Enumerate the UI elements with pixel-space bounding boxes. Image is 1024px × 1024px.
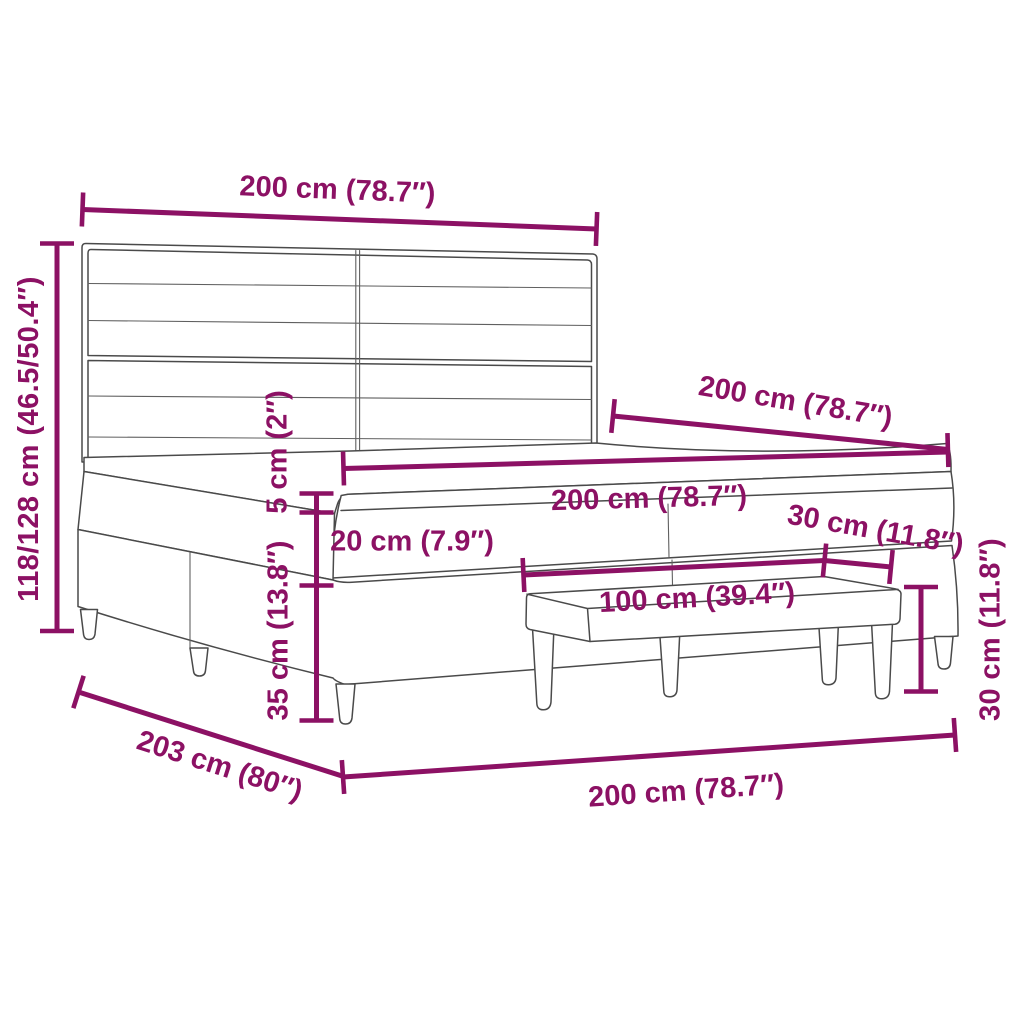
svg-text:200 cm (78.7″): 200 cm (78.7″): [551, 480, 748, 517]
svg-text:35 cm (13.8″): 35 cm (13.8″): [263, 541, 295, 721]
svg-text:20 cm (7.9″): 20 cm (7.9″): [330, 526, 494, 558]
svg-text:5 cm (2″): 5 cm (2″): [262, 390, 294, 514]
svg-text:30 cm (11.8″): 30 cm (11.8″): [975, 538, 1007, 721]
svg-text:118/128 cm (46.5/50.4″): 118/128 cm (46.5/50.4″): [13, 276, 45, 602]
